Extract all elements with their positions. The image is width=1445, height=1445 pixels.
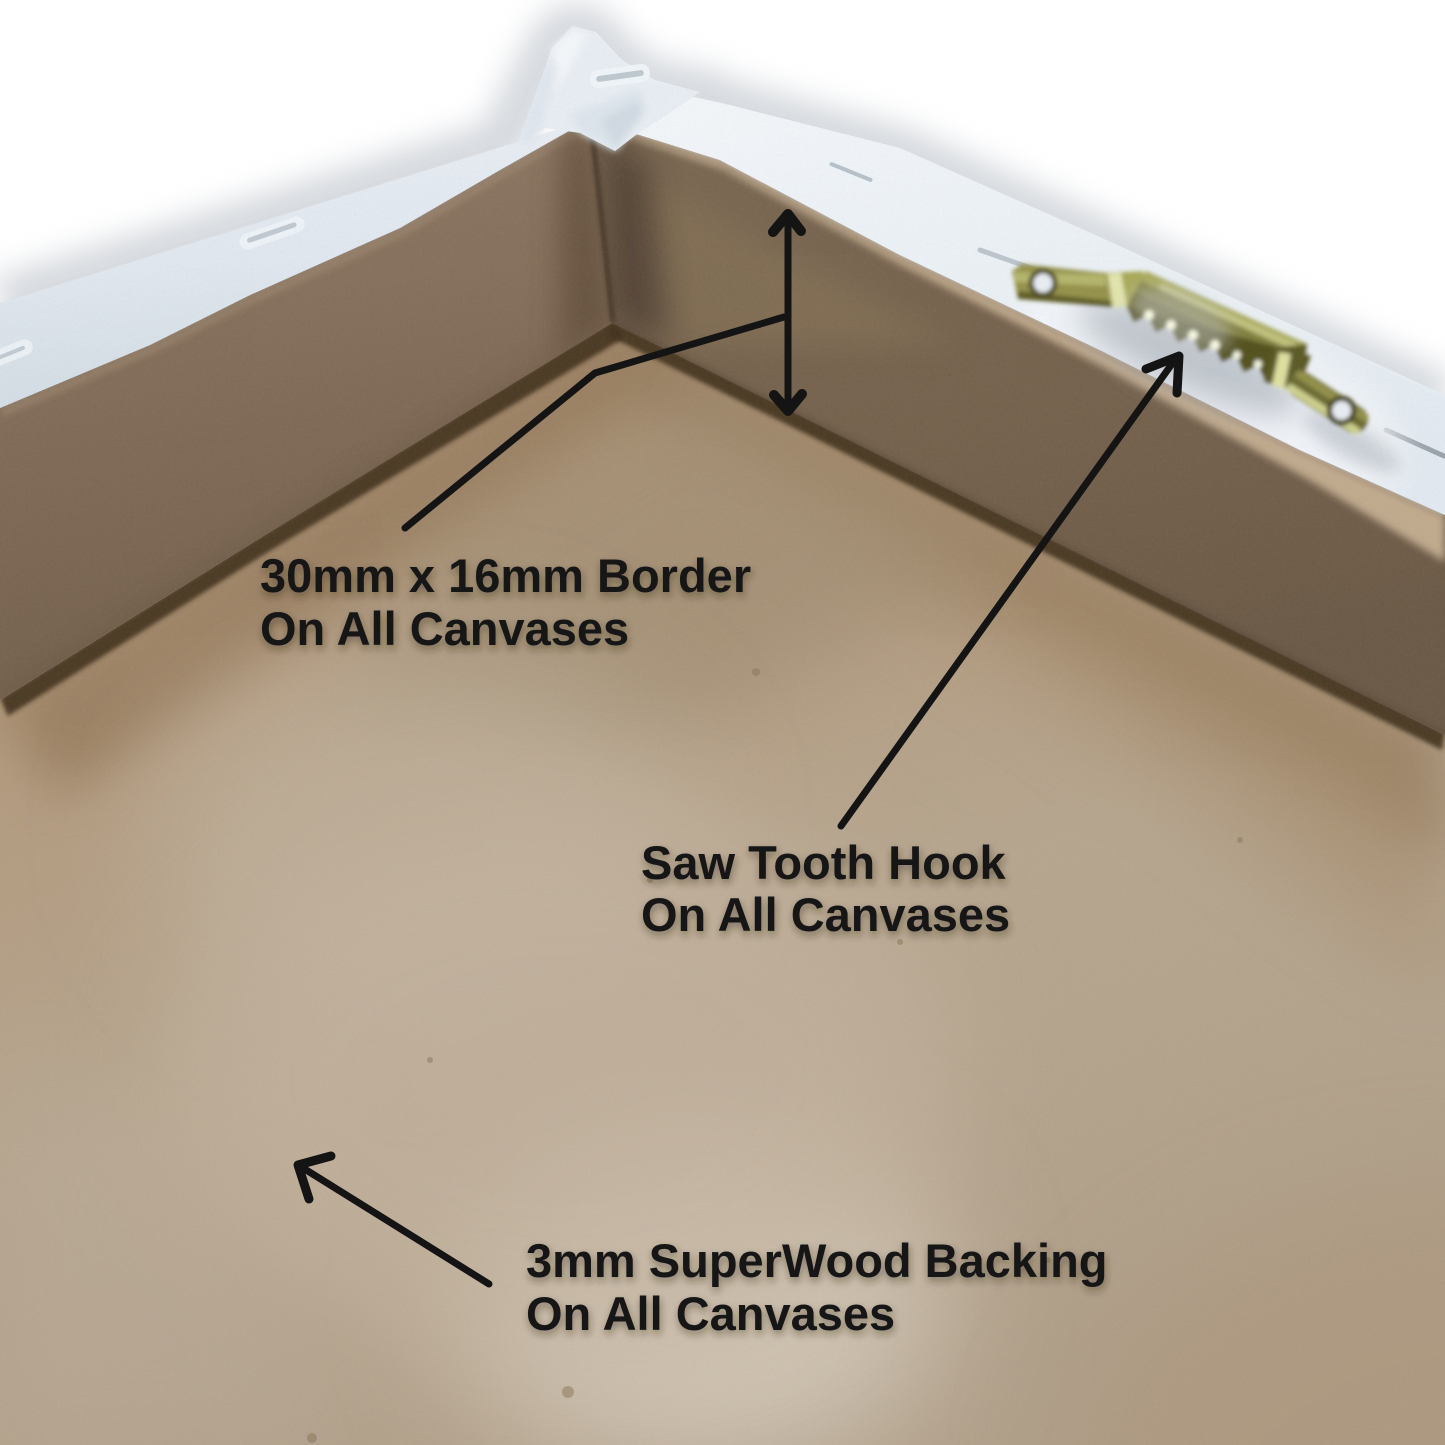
- svg-text:Saw Tooth Hook: Saw Tooth Hook: [641, 836, 1007, 889]
- svg-text:On All Canvases: On All Canvases: [641, 888, 1010, 941]
- svg-text:On All Canvases: On All Canvases: [526, 1287, 895, 1340]
- svg-text:On All Canvases: On All Canvases: [260, 602, 629, 655]
- svg-text:3mm SuperWood Backing: 3mm SuperWood Backing: [526, 1234, 1108, 1287]
- svg-text:30mm x 16mm Border: 30mm x 16mm Border: [260, 549, 751, 602]
